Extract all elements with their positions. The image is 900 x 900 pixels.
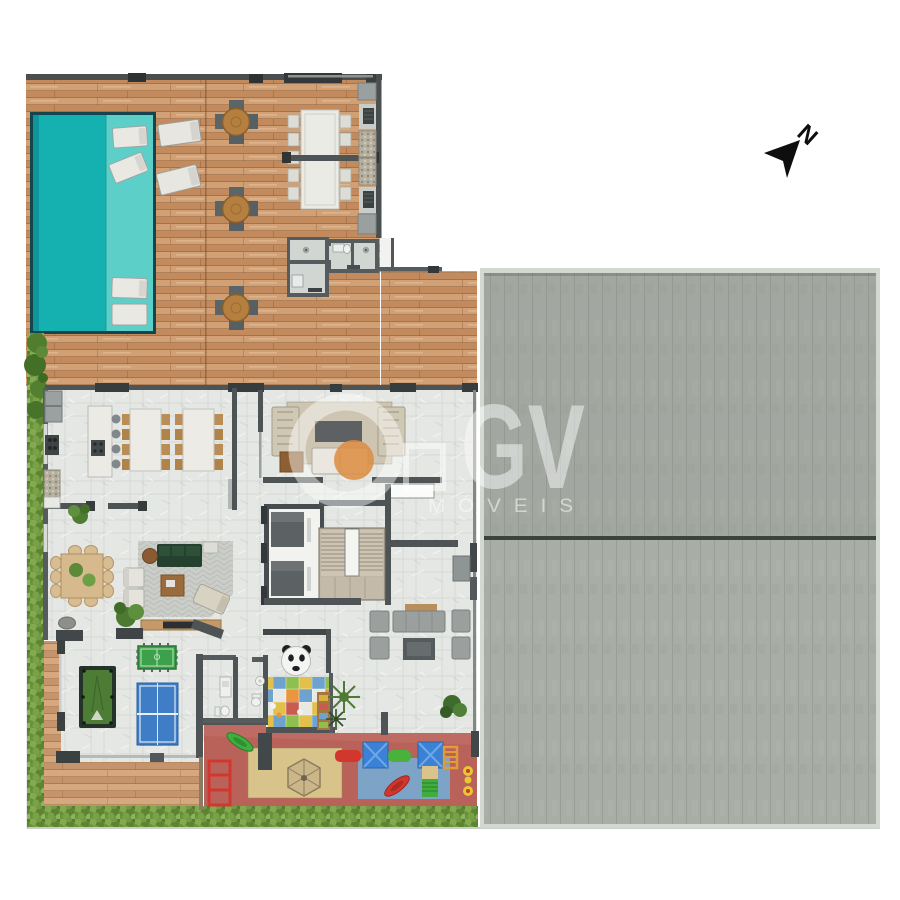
svg-text:MÓVEIS: MÓVEIS: [428, 495, 586, 517]
svg-text:GV: GV: [461, 380, 585, 514]
